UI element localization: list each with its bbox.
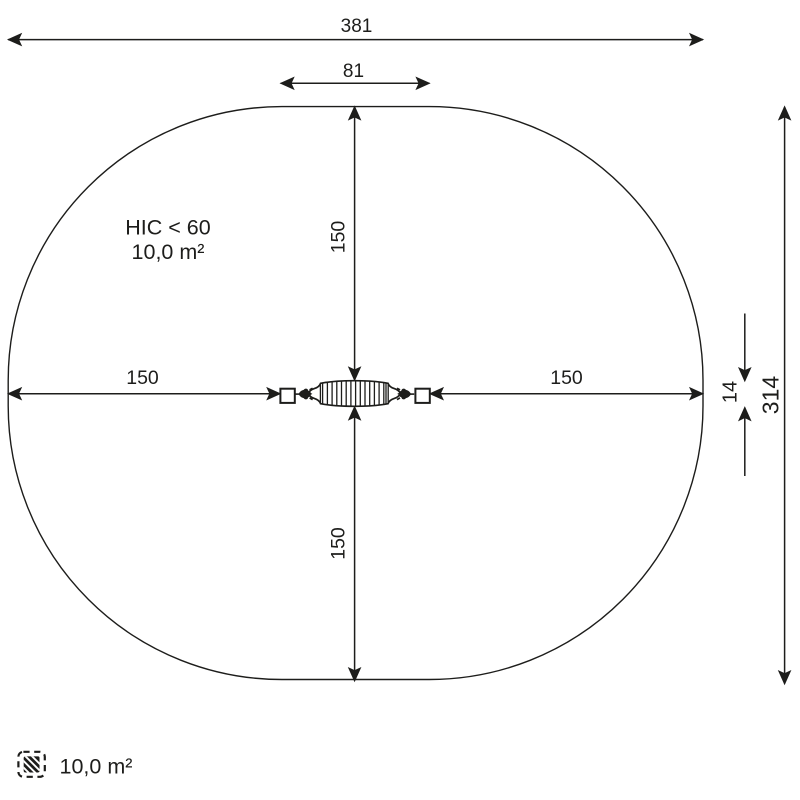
svg-text:150: 150 (328, 221, 350, 254)
svg-text:150: 150 (126, 367, 159, 389)
svg-text:150: 150 (550, 367, 583, 389)
svg-text:10,0 m²: 10,0 m² (60, 755, 133, 779)
svg-text:314: 314 (757, 376, 783, 415)
svg-text:81: 81 (343, 61, 364, 82)
svg-text:381: 381 (341, 16, 373, 37)
svg-text:HIC < 60: HIC < 60 (125, 216, 210, 240)
svg-text:150: 150 (328, 527, 350, 560)
svg-text:10,0 m²: 10,0 m² (132, 240, 205, 264)
svg-text:14: 14 (720, 381, 742, 403)
